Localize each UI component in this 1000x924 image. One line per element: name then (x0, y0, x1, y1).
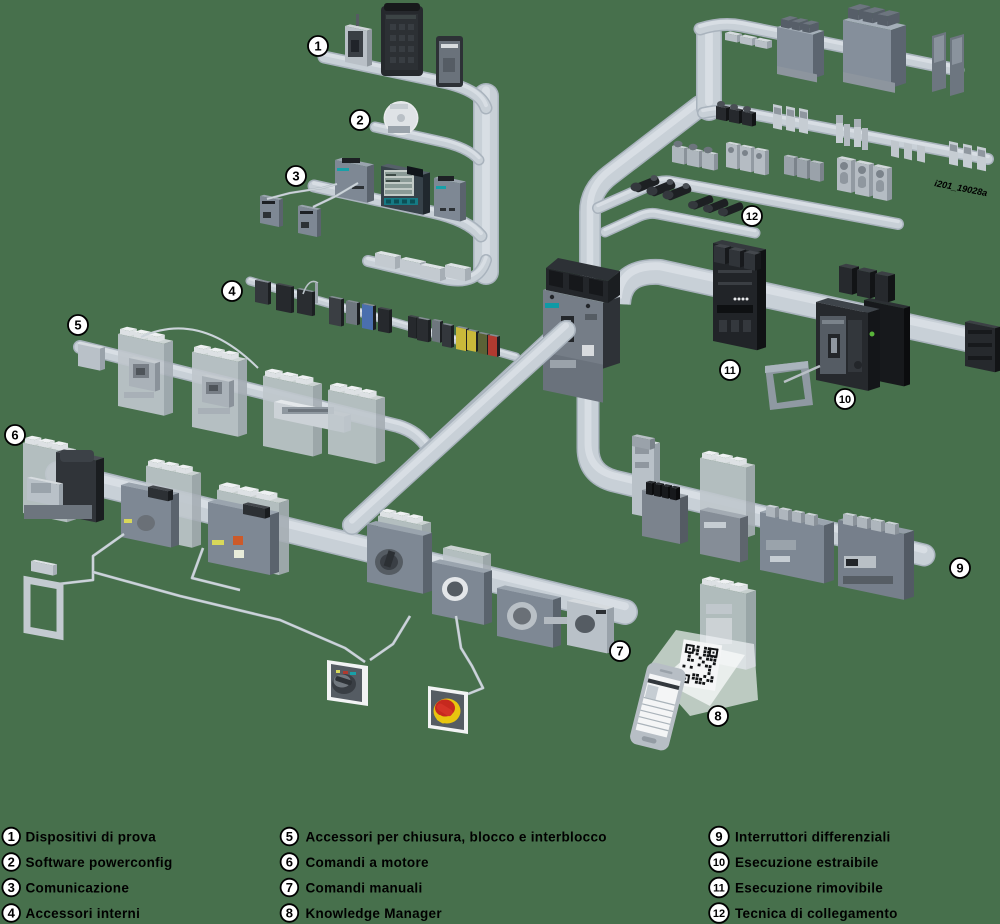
svg-text:Accessori interni: Accessori interni (26, 906, 141, 921)
svg-text:3: 3 (8, 880, 15, 895)
svg-text:Dispositivi di prova: Dispositivi di prova (26, 829, 157, 844)
svg-text:4: 4 (8, 906, 16, 921)
svg-text:10: 10 (713, 857, 725, 869)
svg-text:6: 6 (286, 855, 293, 870)
svg-text:Software powerconfig: Software powerconfig (26, 855, 173, 870)
svg-text:10: 10 (839, 394, 851, 406)
svg-text:7: 7 (616, 644, 623, 659)
svg-text:2: 2 (356, 113, 363, 128)
svg-text:11: 11 (724, 365, 736, 377)
svg-text:Esecuzione rimovibile: Esecuzione rimovibile (735, 880, 883, 895)
svg-text:Comandi a motore: Comandi a motore (306, 855, 430, 870)
svg-text:3: 3 (292, 169, 299, 184)
svg-text:1: 1 (8, 829, 15, 844)
svg-text:8: 8 (714, 709, 721, 724)
svg-text:9: 9 (715, 829, 722, 844)
svg-text:9: 9 (956, 561, 963, 576)
svg-text:7: 7 (286, 880, 293, 895)
svg-text:11: 11 (713, 883, 725, 895)
svg-text:Accessori per chiusura, blocco: Accessori per chiusura, blocco e interbl… (306, 829, 607, 844)
svg-text:Tecnica di collegamento: Tecnica di collegamento (735, 906, 898, 921)
svg-text:5: 5 (74, 318, 81, 333)
svg-text:12: 12 (746, 211, 758, 223)
svg-text:2: 2 (8, 855, 15, 870)
svg-text:4: 4 (228, 284, 236, 299)
svg-text:6: 6 (11, 428, 18, 443)
svg-text:5: 5 (286, 829, 293, 844)
svg-text:1: 1 (314, 39, 321, 54)
svg-text:Interruttori differenziali: Interruttori differenziali (735, 829, 891, 844)
svg-text:Knowledge Manager: Knowledge Manager (306, 906, 443, 921)
svg-text:12: 12 (713, 908, 725, 920)
svg-text:Comunicazione: Comunicazione (26, 880, 130, 895)
svg-text:Esecuzione estraibile: Esecuzione estraibile (735, 855, 879, 870)
svg-text:Comandi manuali: Comandi manuali (306, 880, 423, 895)
svg-text:8: 8 (286, 906, 293, 921)
